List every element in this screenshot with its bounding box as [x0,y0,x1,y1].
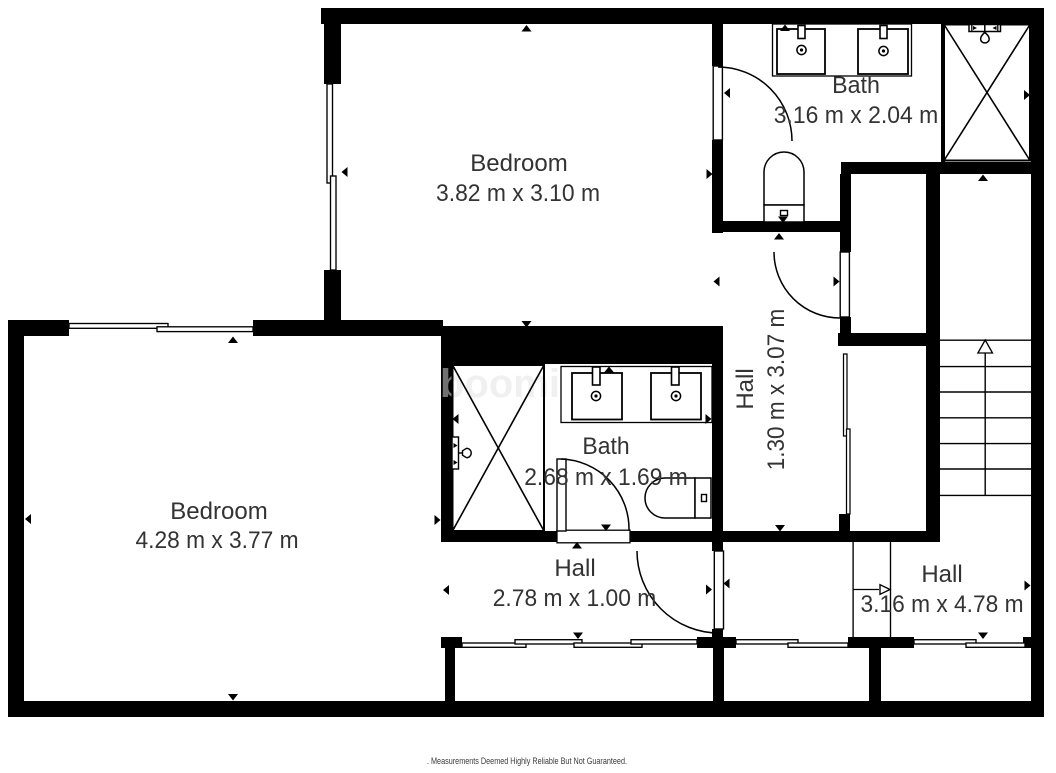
svg-text:Bath: Bath [832,72,880,99]
svg-text:Bedroom: Bedroom [170,498,267,525]
svg-text:2.68 m x 1.69 m: 2.68 m x 1.69 m [524,464,688,491]
svg-text:Bedroom: Bedroom [470,150,567,177]
svg-text:2.78 m x 1.00 m: 2.78 m x 1.00 m [493,585,657,612]
svg-text:3.16 m x 2.04 m: 3.16 m x 2.04 m [774,102,939,129]
svg-text:1.30 m x 3.07 m: 1.30 m x 3.07 m [763,309,790,471]
svg-text:4.28 m x 3.77 m: 4.28 m x 3.77 m [136,527,299,554]
svg-text:3.82 m x 3.10 m: 3.82 m x 3.10 m [436,180,600,207]
svg-text:Hall: Hall [732,368,759,409]
svg-text:Bath: Bath [582,433,629,460]
svg-text:Hall: Hall [921,561,962,588]
svg-text:3.16 m x 4.78 m: 3.16 m x 4.78 m [861,591,1024,618]
svg-text:. Measurements Deemed Highly R: . Measurements Deemed Highly Reliable Bu… [427,756,627,766]
svg-text:Hall: Hall [554,555,595,582]
